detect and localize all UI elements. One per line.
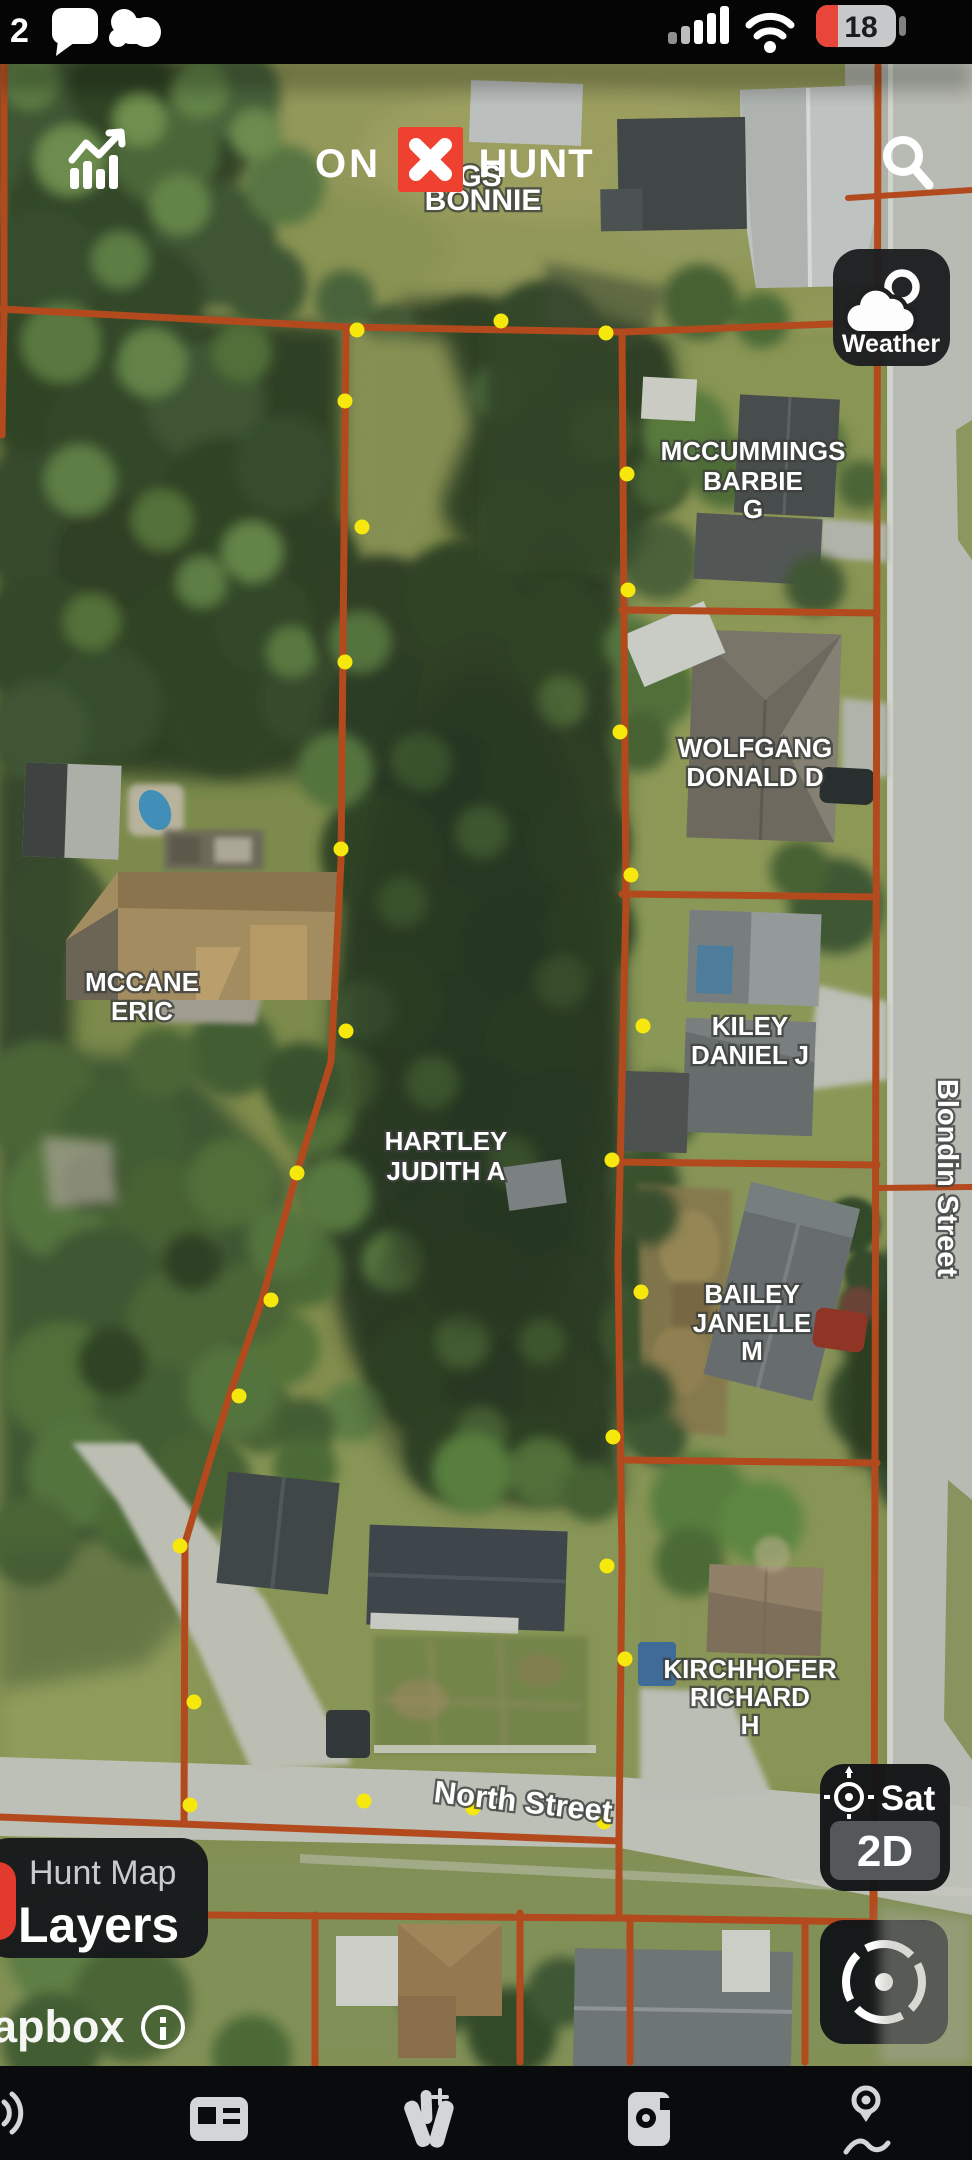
svg-text:Layers: Layers [18,1897,179,1953]
svg-text:G: G [743,494,763,524]
svg-text:BARBIE: BARBIE [703,466,803,496]
svg-text:18: 18 [844,11,877,44]
svg-text:HARTLEY: HARTLEY [385,1126,508,1156]
svg-text:ERIC: ERIC [111,996,173,1026]
svg-text:H: H [741,1710,760,1740]
svg-text:Sat: Sat [881,1779,936,1818]
svg-text:DONALD D: DONALD D [686,762,823,792]
svg-text:apbox: apbox [0,2001,125,2052]
svg-text:RICHARD: RICHARD [690,1682,810,1712]
svg-text:M: M [741,1336,763,1366]
svg-text:ON: ON [315,142,381,186]
svg-text:KIRCHHOFER: KIRCHHOFER [663,1654,837,1684]
svg-text:WOLFGANG: WOLFGANG [678,733,833,763]
svg-text:2: 2 [10,12,29,50]
svg-text:JUDITH A: JUDITH A [387,1156,506,1186]
svg-text:MCCANE: MCCANE [85,967,199,997]
svg-text:KILEY: KILEY [712,1011,789,1041]
svg-text:BAILEY: BAILEY [704,1279,799,1309]
svg-text:HUNT: HUNT [478,142,593,186]
svg-text:MCCUMMINGS: MCCUMMINGS [661,436,846,466]
svg-text:Weather: Weather [842,330,940,358]
svg-text:DANIEL J: DANIEL J [691,1040,809,1070]
svg-text:Hunt Map: Hunt Map [29,1854,176,1892]
svg-text:Blondin Street: Blondin Street [931,1079,963,1278]
svg-text:JANELLE: JANELLE [693,1308,811,1338]
svg-text:2D: 2D [857,1827,913,1876]
